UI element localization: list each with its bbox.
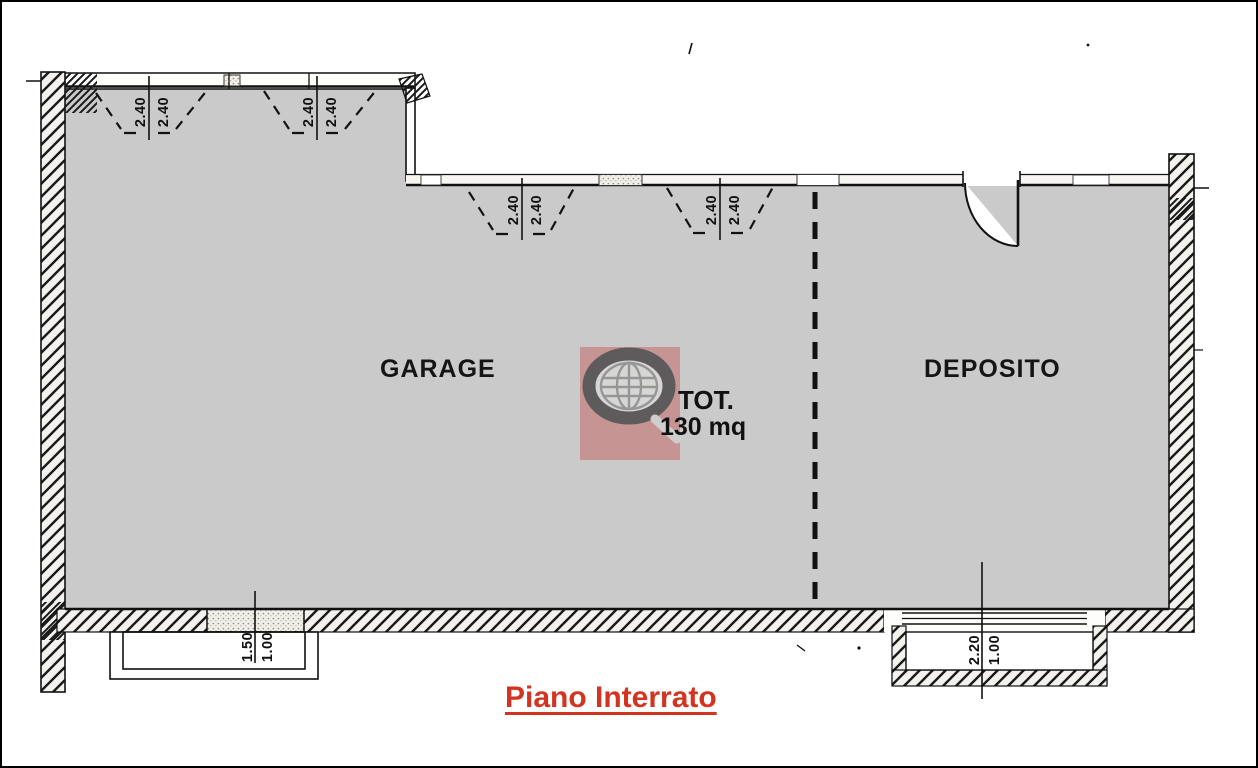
vent-dim-label: 2.40	[133, 97, 149, 127]
wall-pier	[421, 175, 441, 185]
bottom-wall	[57, 609, 1194, 632]
vent-dim-label: 2.40	[324, 97, 340, 127]
top-wall-middle	[406, 174, 1169, 186]
vent-dim-label: 2.40	[506, 195, 522, 225]
wall-pier	[224, 75, 240, 86]
wall-pier	[1073, 175, 1109, 185]
deposito-room-label: DEPOSITO	[924, 355, 1061, 384]
vent-dim-label: 2.40	[529, 195, 545, 225]
dim-label: 2.20	[967, 635, 983, 665]
globe-grid	[601, 363, 657, 409]
vent-dim-label: 2.40	[704, 195, 720, 225]
floorplan-drawing: 2.40 2.40 2.40 2.40 2.40 2.40 2.	[2, 2, 1258, 768]
total-area-value: 130 mq	[660, 413, 746, 442]
vent-dim-label: 2.40	[156, 97, 172, 127]
door-opening	[963, 171, 1020, 186]
garage-window-well	[110, 632, 318, 679]
right-wall	[1169, 154, 1209, 632]
vent-dim-label: 2.40	[301, 97, 317, 127]
watermark-globe-logo	[580, 347, 680, 460]
floorplan-canvas: 2.40 2.40 2.40 2.40 2.40 2.40 2.	[0, 0, 1258, 768]
wall-joint-hatch	[1169, 198, 1194, 220]
vent-dim-label: 2.40	[727, 195, 743, 225]
garage-top-wall	[57, 73, 415, 89]
garage-room-label: GARAGE	[380, 355, 496, 384]
total-label: TOT.	[678, 385, 734, 416]
floor-title: Piano Interrato	[505, 681, 717, 715]
wall-pier	[797, 175, 839, 186]
dim-label: 1.00	[260, 632, 276, 662]
dim-label: 1.50	[240, 632, 256, 662]
dim-label: 1.00	[987, 635, 1003, 665]
wall-pier	[599, 175, 642, 186]
left-wall	[41, 72, 65, 692]
